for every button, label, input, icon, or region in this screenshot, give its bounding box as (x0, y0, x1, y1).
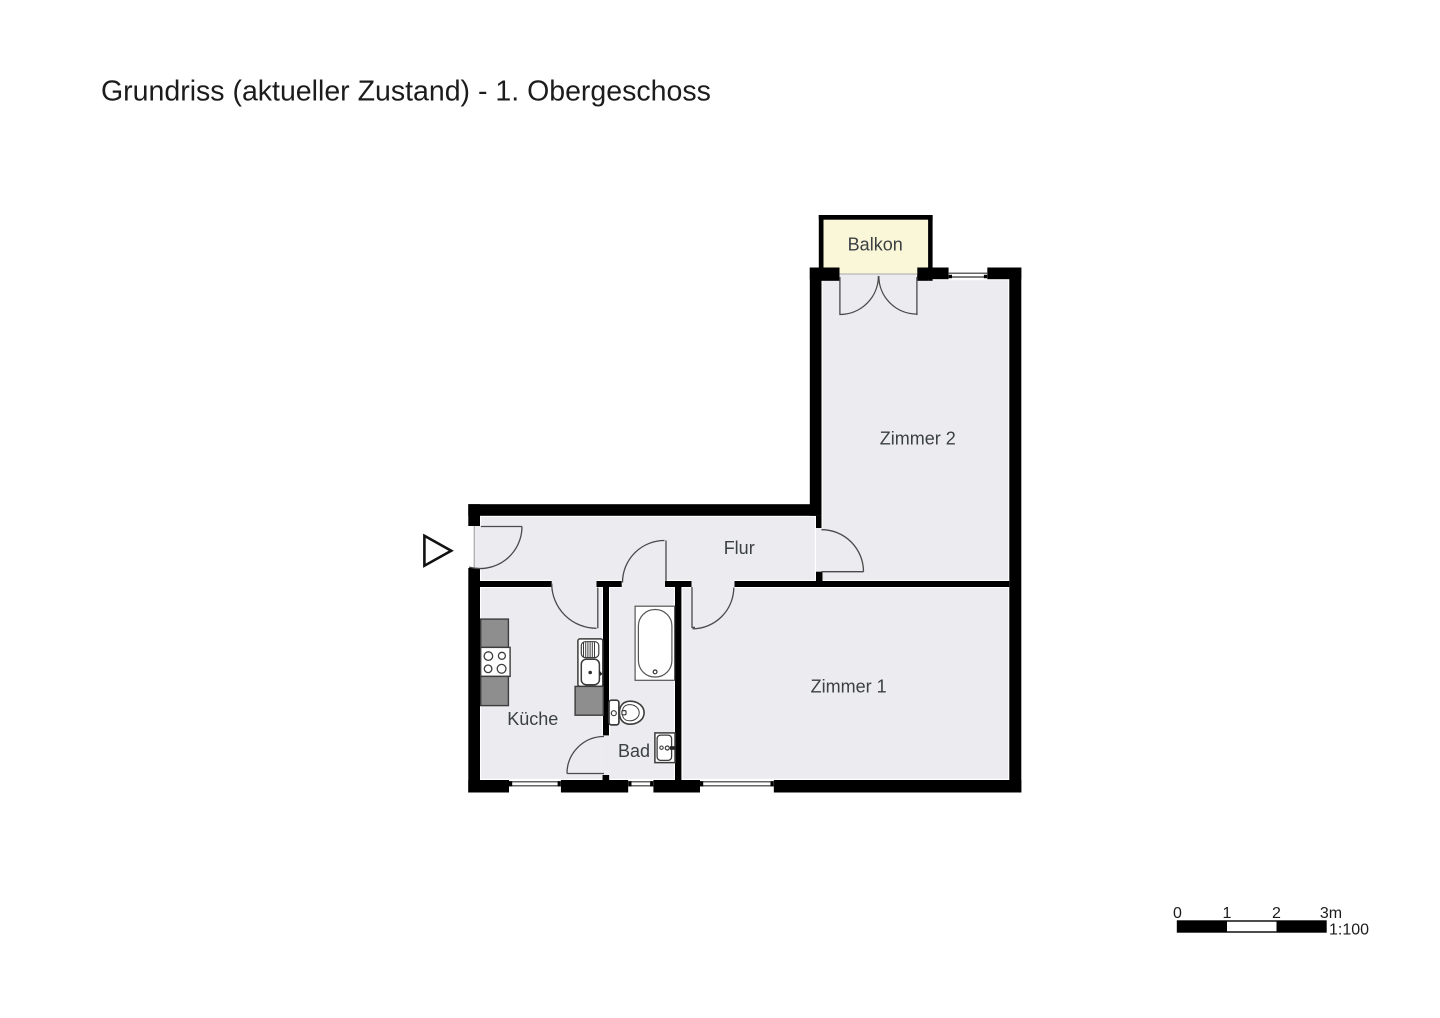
svg-text:Bad: Bad (618, 741, 650, 761)
svg-text:Balkon: Balkon (848, 235, 903, 255)
svg-text:Zimmer 1: Zimmer 1 (811, 677, 887, 697)
svg-text:1:100: 1:100 (1329, 922, 1369, 939)
svg-text:Grundriss (aktueller Zustand): Grundriss (aktueller Zustand) - 1. Oberg… (101, 76, 711, 108)
svg-text:Flur: Flur (724, 538, 755, 558)
svg-text:Küche: Küche (507, 709, 558, 729)
svg-text:3m: 3m (1320, 905, 1342, 922)
svg-text:Zimmer 2: Zimmer 2 (880, 428, 956, 448)
svg-text:1: 1 (1223, 905, 1232, 922)
svg-text:2: 2 (1272, 905, 1281, 922)
svg-text:0: 0 (1173, 905, 1182, 922)
